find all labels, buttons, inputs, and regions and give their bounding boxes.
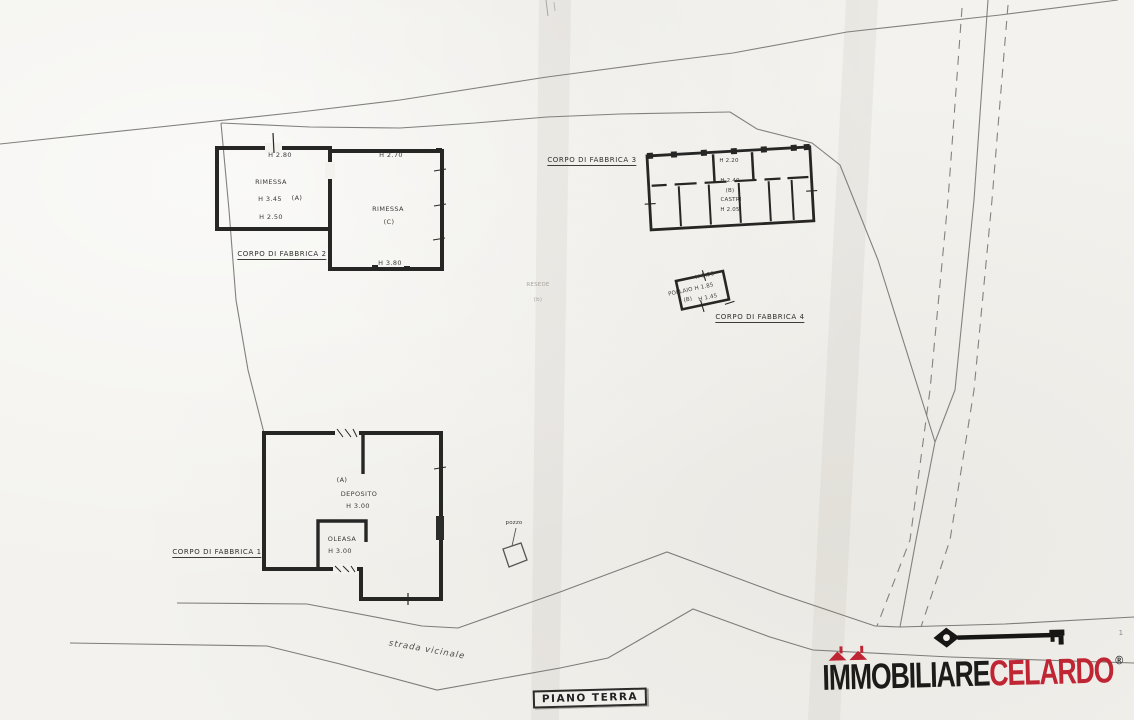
track-centerline-upper bbox=[935, 0, 988, 442]
corpo2-top-left-height: H 2.80 bbox=[268, 151, 292, 159]
corpo2-room1-name: RIMESSA bbox=[255, 178, 287, 186]
plan-linework bbox=[0, 0, 1134, 720]
parcel-west-boundary bbox=[221, 123, 264, 433]
corpo1-room-height: H 3.00 bbox=[346, 502, 370, 510]
corpo2-room1-letter: (A) bbox=[292, 194, 303, 202]
brand-red-text: CELARDO bbox=[989, 649, 1114, 693]
corpo1-letter: (A) bbox=[337, 476, 348, 484]
resede-sub-label: (b) bbox=[534, 297, 542, 303]
brand-black-text: OBILIARE bbox=[870, 653, 989, 697]
well-pozzo bbox=[503, 528, 527, 567]
building-corpo-1 bbox=[264, 428, 446, 605]
brand-wordmark: IMMOBILIARECELARDO® bbox=[822, 642, 1123, 696]
corpo2-title: CORPO DI FABBRICA 2 bbox=[237, 250, 326, 260]
track-centerline-lower bbox=[900, 442, 935, 627]
corpo3-title: CORPO DI FABBRICA 3 bbox=[547, 156, 636, 166]
brand-letter-m2: M bbox=[849, 659, 871, 696]
track-dashed-west bbox=[877, 8, 962, 626]
corpo1-room-name: DEPOSITO bbox=[341, 490, 377, 498]
track-dashed-east bbox=[921, 5, 1008, 627]
corpo1-title: CORPO DI FABBRICA 1 bbox=[172, 548, 261, 558]
corpo2-bottom-left-height: H 2.50 bbox=[259, 213, 283, 221]
resede-label: RESEDE bbox=[526, 282, 549, 288]
corpo2-room2-letter: (C) bbox=[384, 218, 395, 226]
corpo2-room2-name: RIMESSA bbox=[372, 205, 404, 213]
brand-letter-m1: M bbox=[828, 659, 850, 696]
corpo3-mid-height: H 2.40 bbox=[720, 178, 739, 184]
building-corpo-3 bbox=[642, 144, 819, 231]
chimney-icon bbox=[839, 646, 842, 653]
scan-seams bbox=[531, 0, 878, 720]
registered-mark: ® bbox=[1115, 642, 1124, 678]
house-roof-icon bbox=[828, 651, 846, 660]
right-track-lines bbox=[877, 0, 1008, 627]
scanned-floor-plan: H 2.80 RIMESSA H 3.45 (A) H 2.50 H 2.70 … bbox=[0, 0, 1134, 720]
corpo2-top-right-height: H 2.70 bbox=[379, 151, 403, 159]
corpo3-top-height: H 2.20 bbox=[719, 158, 738, 164]
parcel-north-boundary bbox=[221, 112, 730, 128]
corpo1-room2-height: H 3.00 bbox=[328, 547, 352, 555]
road-upper-edge bbox=[177, 552, 1134, 628]
well-label: pozzo bbox=[506, 520, 523, 526]
corpo1-room2-name: OLEASA bbox=[328, 535, 356, 543]
corpo2-room1-height: H 3.45 bbox=[258, 195, 282, 203]
corpo3-room-name: CASTRI bbox=[720, 197, 741, 203]
corpo4-title: CORPO DI FABBRICA 4 bbox=[715, 313, 804, 323]
corpo3-room-height: H 2.05 bbox=[720, 207, 739, 213]
chimney-icon bbox=[860, 646, 863, 653]
agency-watermark: IMMOBILIARECELARDO® bbox=[819, 620, 1121, 694]
corpo3-letter: (B) bbox=[726, 188, 735, 194]
corpo2-bottom-right-height: H 3.80 bbox=[378, 259, 402, 267]
piano-terra-stamp: PIANO TERRA bbox=[533, 688, 648, 709]
house-roof-icon bbox=[849, 651, 867, 660]
